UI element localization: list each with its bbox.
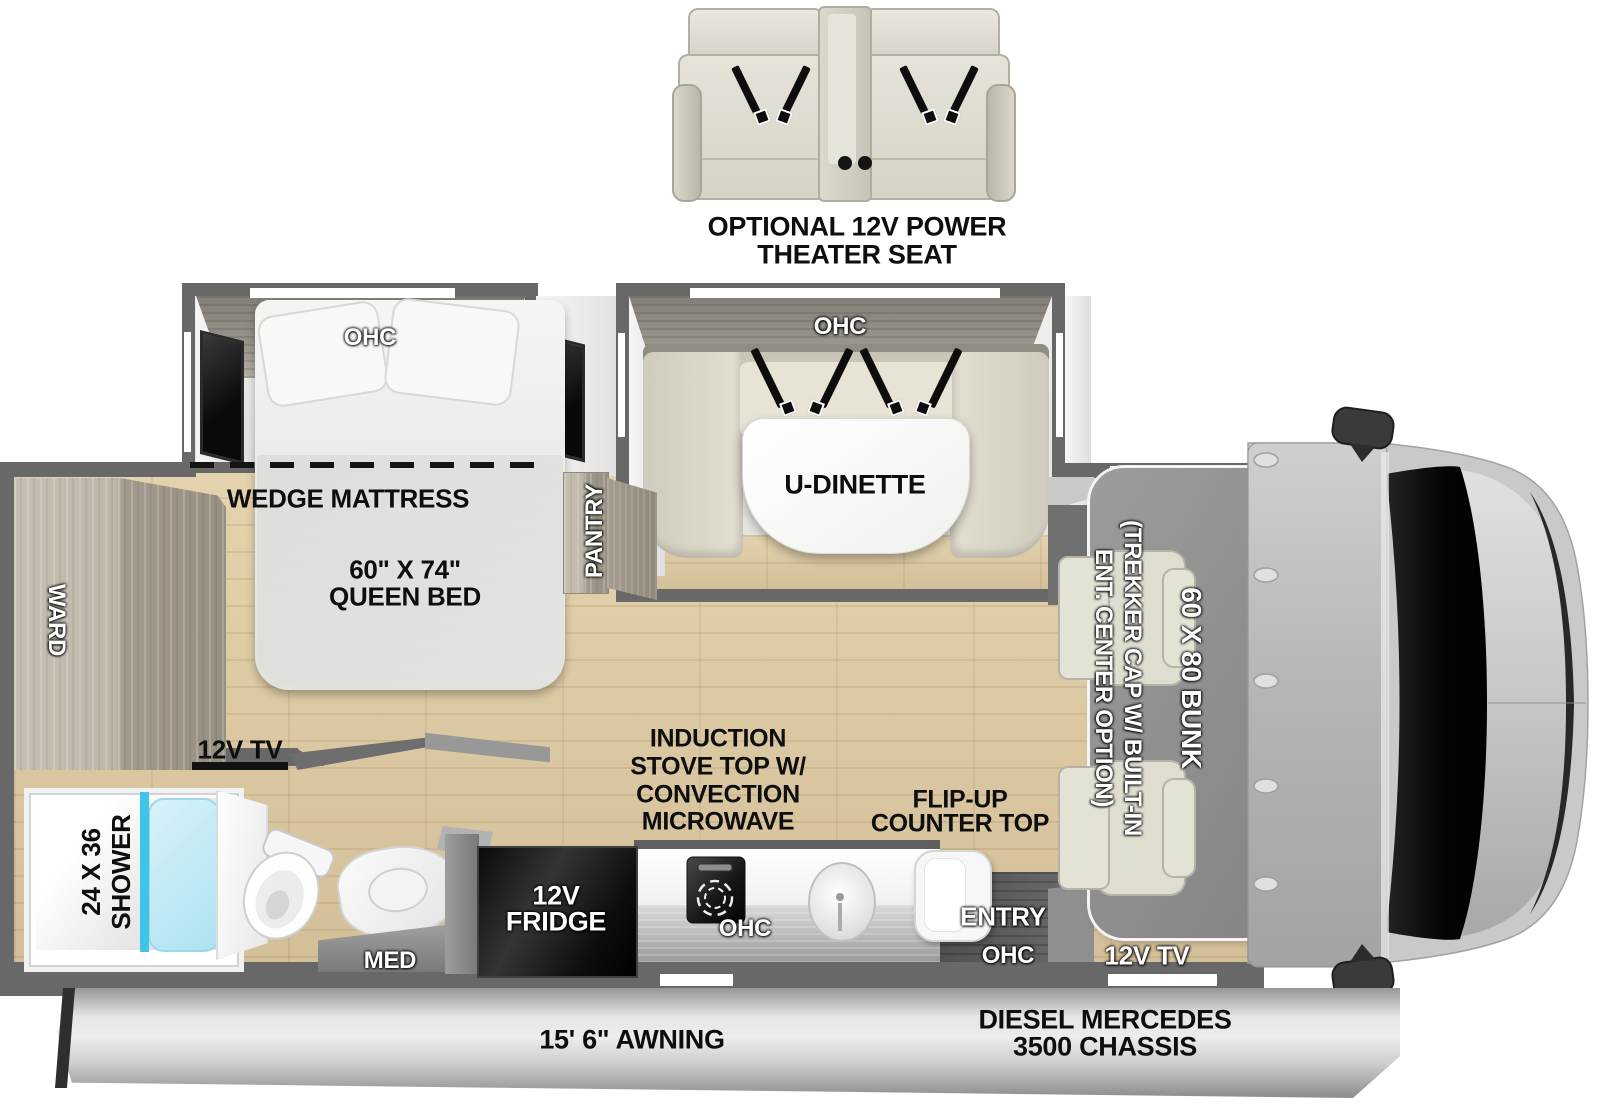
wedge-mattress-label: WEDGE MATTRESS bbox=[227, 484, 469, 515]
sink-icon bbox=[808, 862, 876, 942]
queen-bed-label-line2: QUEEN BED bbox=[329, 582, 481, 613]
window-icon bbox=[660, 974, 733, 986]
induction-label-line2: STOVE TOP W/ bbox=[630, 753, 806, 782]
wall bbox=[0, 462, 196, 477]
shower-label: 24 X 36 SHOWER bbox=[76, 814, 136, 929]
shower-label-line2: SHOWER bbox=[106, 814, 136, 929]
induction-label-line3: CONVECTION bbox=[636, 781, 800, 810]
rv-floorplan-diagram: OPTIONAL 12V POWER THEATER SEAT bbox=[0, 0, 1600, 1109]
pantry-label: PANTRY bbox=[581, 484, 609, 578]
shower-pan bbox=[148, 798, 220, 952]
bedroom-tv-label: 12V TV bbox=[198, 735, 283, 766]
faucet-icon bbox=[838, 903, 842, 931]
bunk-label: 60 X 80 BUNK bbox=[1175, 587, 1207, 769]
cupholder-icon bbox=[838, 156, 852, 170]
pantry-cabinet-side bbox=[607, 478, 657, 600]
theater-seat-illustration bbox=[672, 6, 1012, 202]
bedroom-ohc-label: OHC bbox=[344, 324, 396, 352]
shower-label-line1: 24 X 36 bbox=[76, 814, 106, 929]
entry-step bbox=[1048, 884, 1094, 962]
counter-end-panel bbox=[445, 834, 479, 974]
kitchen-counter-front bbox=[634, 905, 940, 962]
cab-front-illustration bbox=[1200, 388, 1600, 1036]
pillow-icon bbox=[383, 297, 522, 408]
trekker-cap-label-line1: (TREKKER CAP W/ BUILT-IN bbox=[1118, 520, 1147, 836]
induction-label-line1: INDUCTION bbox=[650, 725, 786, 754]
theater-armrest-left bbox=[672, 84, 702, 202]
window-icon bbox=[1056, 333, 1063, 437]
console-inner bbox=[828, 14, 856, 164]
seat-seam bbox=[682, 158, 820, 160]
window-icon bbox=[184, 332, 191, 452]
window-icon bbox=[690, 288, 1000, 298]
counter-backsplash bbox=[634, 840, 940, 849]
dinette-seat-left bbox=[643, 352, 743, 558]
pillow-icon bbox=[256, 299, 391, 409]
theater-armrest-right bbox=[986, 84, 1016, 202]
wall bbox=[0, 462, 14, 996]
window-icon bbox=[618, 333, 625, 437]
cupholder-icon bbox=[858, 156, 872, 170]
flipup-label-line2: COUNTER TOP bbox=[871, 810, 1049, 839]
cab-tv-label: 12V TV bbox=[1105, 941, 1190, 972]
kitchen-ohc-label: OHC bbox=[719, 915, 771, 943]
toilet-icon bbox=[224, 820, 354, 960]
seat-seam bbox=[864, 158, 1002, 160]
dinette-ohc-label: OHC bbox=[814, 313, 866, 341]
wardrobe-label: WARD bbox=[42, 584, 70, 656]
window-icon bbox=[250, 288, 455, 298]
seat-headrest bbox=[1162, 778, 1196, 878]
awning-label: 15' 6" AWNING bbox=[539, 1025, 724, 1056]
trekker-cap-label-line2: ENT. CENTER OPTION) bbox=[1089, 520, 1118, 836]
kitchen-counter-top bbox=[634, 849, 940, 907]
theater-seat-label-line1: OPTIONAL 12V POWER bbox=[708, 212, 1007, 243]
fridge-label-line2: FRIDGE bbox=[506, 907, 606, 938]
theater-seat-label-line2: THEATER SEAT bbox=[757, 240, 956, 271]
shower-glass-icon bbox=[140, 792, 149, 952]
induction-label-line4: MICROWAVE bbox=[642, 808, 794, 837]
trekker-cap-label: (TREKKER CAP W/ BUILT-IN ENT. CENTER OPT… bbox=[1089, 520, 1147, 836]
u-dinette-label: U-DINETTE bbox=[784, 470, 925, 501]
med-label: MED bbox=[364, 947, 416, 975]
window-pane-icon bbox=[200, 330, 244, 465]
chassis-label-line2: 3500 CHASSIS bbox=[1013, 1032, 1197, 1063]
wedge-hinge-dashed-line bbox=[190, 462, 542, 468]
entry-ohc-label: OHC bbox=[982, 942, 1034, 970]
sink-drain-icon bbox=[836, 893, 844, 901]
entry-label: ENTRY bbox=[960, 902, 1046, 933]
